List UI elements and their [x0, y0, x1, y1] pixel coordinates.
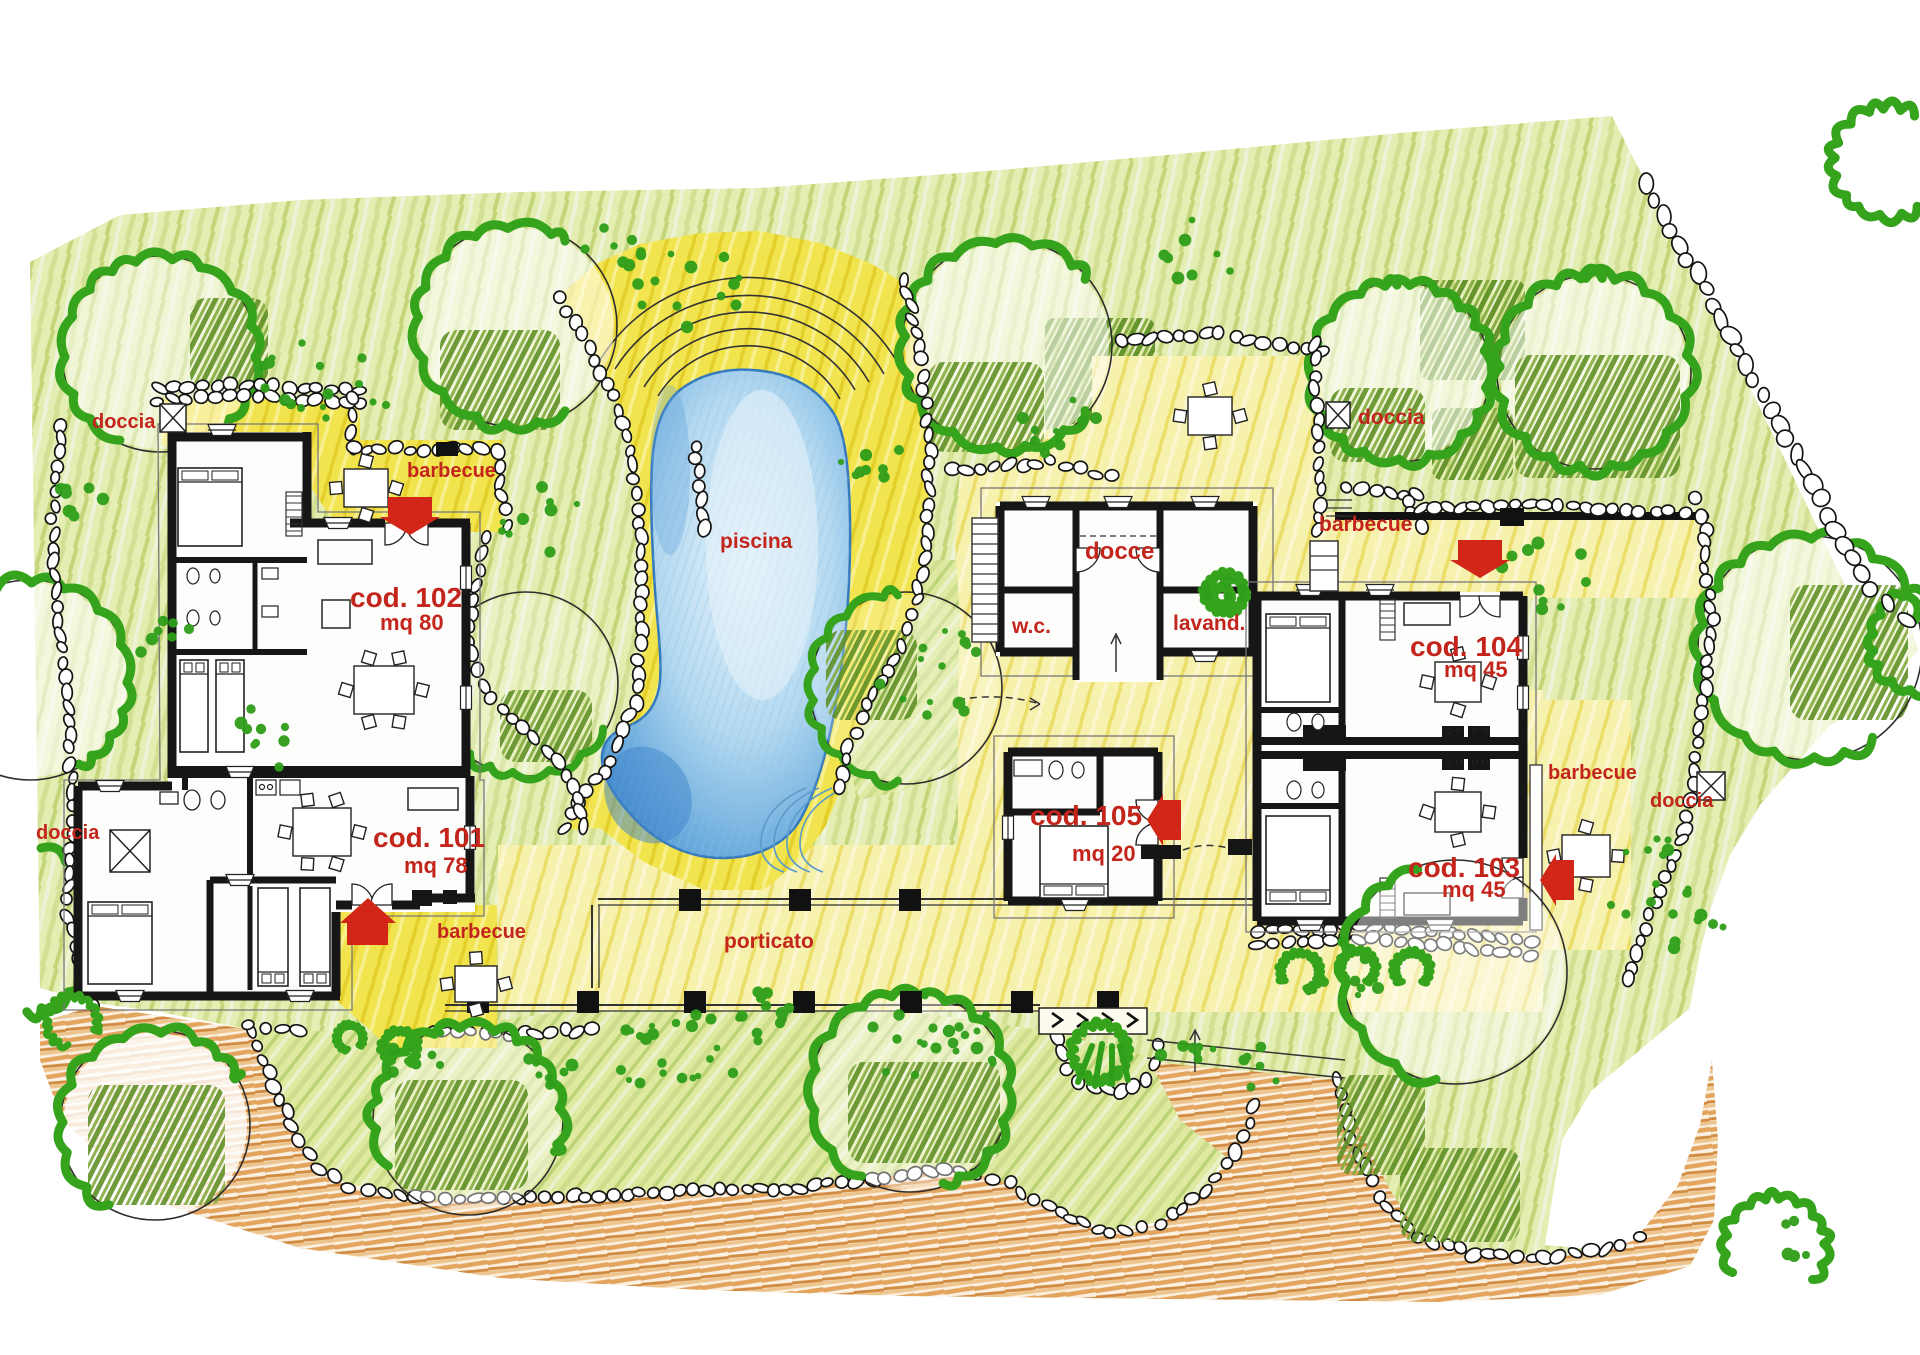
svg-text:mq 80: mq 80	[380, 610, 444, 635]
svg-text:barbecue: barbecue	[437, 921, 526, 943]
svg-text:cod. 101: cod. 101	[373, 822, 485, 853]
svg-text:barbecue: barbecue	[407, 460, 496, 482]
svg-text:doccia: doccia	[92, 411, 156, 433]
svg-text:lavand.: lavand.	[1173, 612, 1245, 635]
svg-text:porticato: porticato	[724, 930, 814, 953]
svg-text:docce: docce	[1085, 538, 1154, 565]
svg-text:w.c.: w.c.	[1011, 615, 1051, 638]
svg-text:mq 20: mq 20	[1072, 841, 1136, 866]
svg-text:cod. 105: cod. 105	[1030, 800, 1142, 831]
svg-text:piscina: piscina	[720, 530, 793, 553]
svg-text:doccia: doccia	[1358, 406, 1425, 429]
svg-text:barbecue: barbecue	[1548, 762, 1637, 784]
svg-text:doccia: doccia	[36, 822, 100, 844]
svg-text:doccia: doccia	[1650, 790, 1714, 812]
svg-text:mq 78: mq 78	[404, 853, 468, 878]
svg-text:barbecue: barbecue	[1319, 513, 1412, 536]
svg-text:cod. 102: cod. 102	[350, 582, 462, 613]
svg-text:mq 45: mq 45	[1442, 877, 1506, 902]
svg-text:mq 45: mq 45	[1444, 657, 1508, 682]
